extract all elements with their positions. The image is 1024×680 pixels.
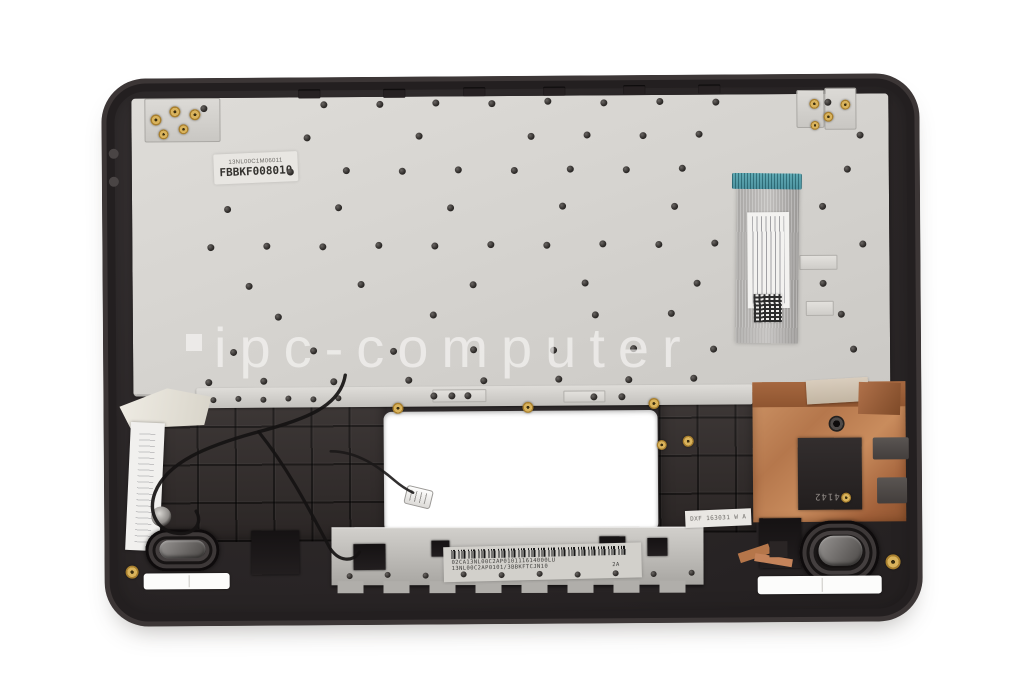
brass-screw-insert: [823, 112, 833, 122]
palmrest-assembly: 13NL00C1M06011 FBBKF008010 F4142: [0, 0, 1024, 680]
screw-head: [694, 280, 701, 287]
screw-head: [358, 281, 365, 288]
screw-head: [857, 132, 864, 139]
screw-head: [260, 397, 266, 403]
screw-head: [543, 242, 550, 249]
screw-head: [310, 396, 316, 402]
brass-screw-insert: [159, 129, 169, 139]
product-photo: 13NL00C1M06011 FBBKF008010 F4142: [0, 0, 1024, 680]
screw-head: [618, 393, 625, 400]
brass-screw-insert: [683, 436, 694, 447]
screw-head: [584, 131, 591, 138]
screw-head: [690, 375, 697, 382]
screw-head: [582, 279, 589, 286]
screw-head: [275, 314, 282, 321]
screw-head: [416, 133, 423, 140]
bracket-screw-hole: [651, 571, 657, 577]
brass-screw-insert: [178, 124, 188, 134]
screw-head: [480, 377, 487, 384]
screw-head: [592, 311, 599, 318]
screw-head: [210, 397, 216, 403]
screw-head: [850, 346, 857, 353]
bracket-screw-hole: [689, 570, 695, 576]
screw-head: [487, 241, 494, 248]
brass-screw-insert: [392, 403, 403, 414]
screw-head: [824, 99, 831, 106]
screw-head: [711, 240, 718, 247]
screw-head: [559, 203, 566, 210]
screw-head: [448, 392, 455, 399]
screw-head: [625, 376, 632, 383]
screw-head: [287, 169, 294, 176]
screw-head: [224, 206, 231, 213]
screw-head: [205, 379, 212, 386]
screw-head: [320, 101, 327, 108]
plate-slot: [463, 87, 485, 96]
screw-head: [376, 101, 383, 108]
bracket-screw-hole: [537, 571, 543, 577]
screw-head: [230, 349, 237, 356]
bracket-screw-hole: [575, 572, 581, 578]
bracket-screw-hole: [613, 570, 619, 576]
brass-screw-insert: [648, 398, 659, 409]
screw-head: [550, 347, 557, 354]
screw-head: [464, 392, 471, 399]
brass-screw-insert: [150, 114, 161, 125]
screw-head: [260, 378, 267, 385]
screw-head: [430, 393, 437, 400]
screw-head: [819, 203, 826, 210]
bracket-screw-hole: [461, 571, 467, 577]
screw-head: [679, 165, 686, 172]
screw-head: [263, 243, 270, 250]
screw-head: [390, 348, 397, 355]
screw-head: [200, 105, 207, 112]
screw-head: [399, 168, 406, 175]
screw-head: [319, 243, 326, 250]
brass-screw-insert: [657, 440, 667, 450]
screw-head: [330, 378, 337, 385]
screw-head: [671, 203, 678, 210]
screw-head: [207, 244, 214, 251]
screw-head: [488, 100, 495, 107]
screw-head: [431, 243, 438, 250]
screw-head: [455, 166, 462, 173]
screw-head: [246, 283, 253, 290]
screw-head: [470, 346, 477, 353]
brass-screw-insert: [840, 100, 850, 110]
screw-head: [696, 131, 703, 138]
screw-head: [656, 98, 663, 105]
plate-slot: [543, 87, 565, 96]
screw-head: [511, 167, 518, 174]
brass-screw-insert: [809, 99, 819, 109]
screw-head: [555, 376, 562, 383]
brass-screw-insert: [169, 106, 180, 117]
plate-slot: [298, 89, 320, 98]
screw-head: [447, 204, 454, 211]
screw-head: [844, 166, 851, 173]
screw-head: [405, 377, 412, 384]
bracket-screw-hole: [499, 572, 505, 578]
screw-head: [838, 311, 845, 318]
screw-head: [343, 167, 350, 174]
screw-head: [712, 99, 719, 106]
screw-head: [470, 281, 477, 288]
screw-head: [335, 204, 342, 211]
brass-screw-insert: [189, 109, 200, 120]
screw-head: [600, 99, 607, 106]
brass-screw-insert: [810, 121, 819, 130]
screw-head: [285, 396, 291, 402]
screw-head: [430, 312, 437, 319]
plate-slot: [623, 85, 645, 94]
screw-head: [528, 133, 535, 140]
screw-head: [304, 134, 311, 141]
brass-screw-insert: [126, 566, 139, 579]
brass-screw-insert: [522, 402, 533, 413]
screw-head: [310, 347, 317, 354]
screw-head: [640, 132, 647, 139]
screw-head: [599, 240, 606, 247]
bracket-screw-hole: [385, 572, 391, 578]
brass-screw-insert: [841, 493, 851, 503]
screw-head: [710, 346, 717, 353]
brass-screw-insert: [886, 554, 901, 569]
screw-head: [655, 241, 662, 248]
screw-head: [820, 280, 827, 287]
plate-slot: [383, 89, 405, 98]
screw-head: [375, 242, 382, 249]
bracket-screw-hole: [347, 573, 353, 579]
screw-head: [668, 310, 675, 317]
screw-head: [567, 166, 574, 173]
screw-head: [623, 166, 630, 173]
screw-head: [432, 100, 439, 107]
screw-head: [544, 98, 551, 105]
screw-layer: [0, 0, 1024, 680]
screw-head: [335, 395, 341, 401]
plate-slot: [698, 85, 720, 94]
screw-head: [590, 393, 597, 400]
screw-head: [630, 345, 637, 352]
screw-head: [859, 241, 866, 248]
screw-head: [235, 396, 241, 402]
bracket-screw-hole: [423, 573, 429, 579]
